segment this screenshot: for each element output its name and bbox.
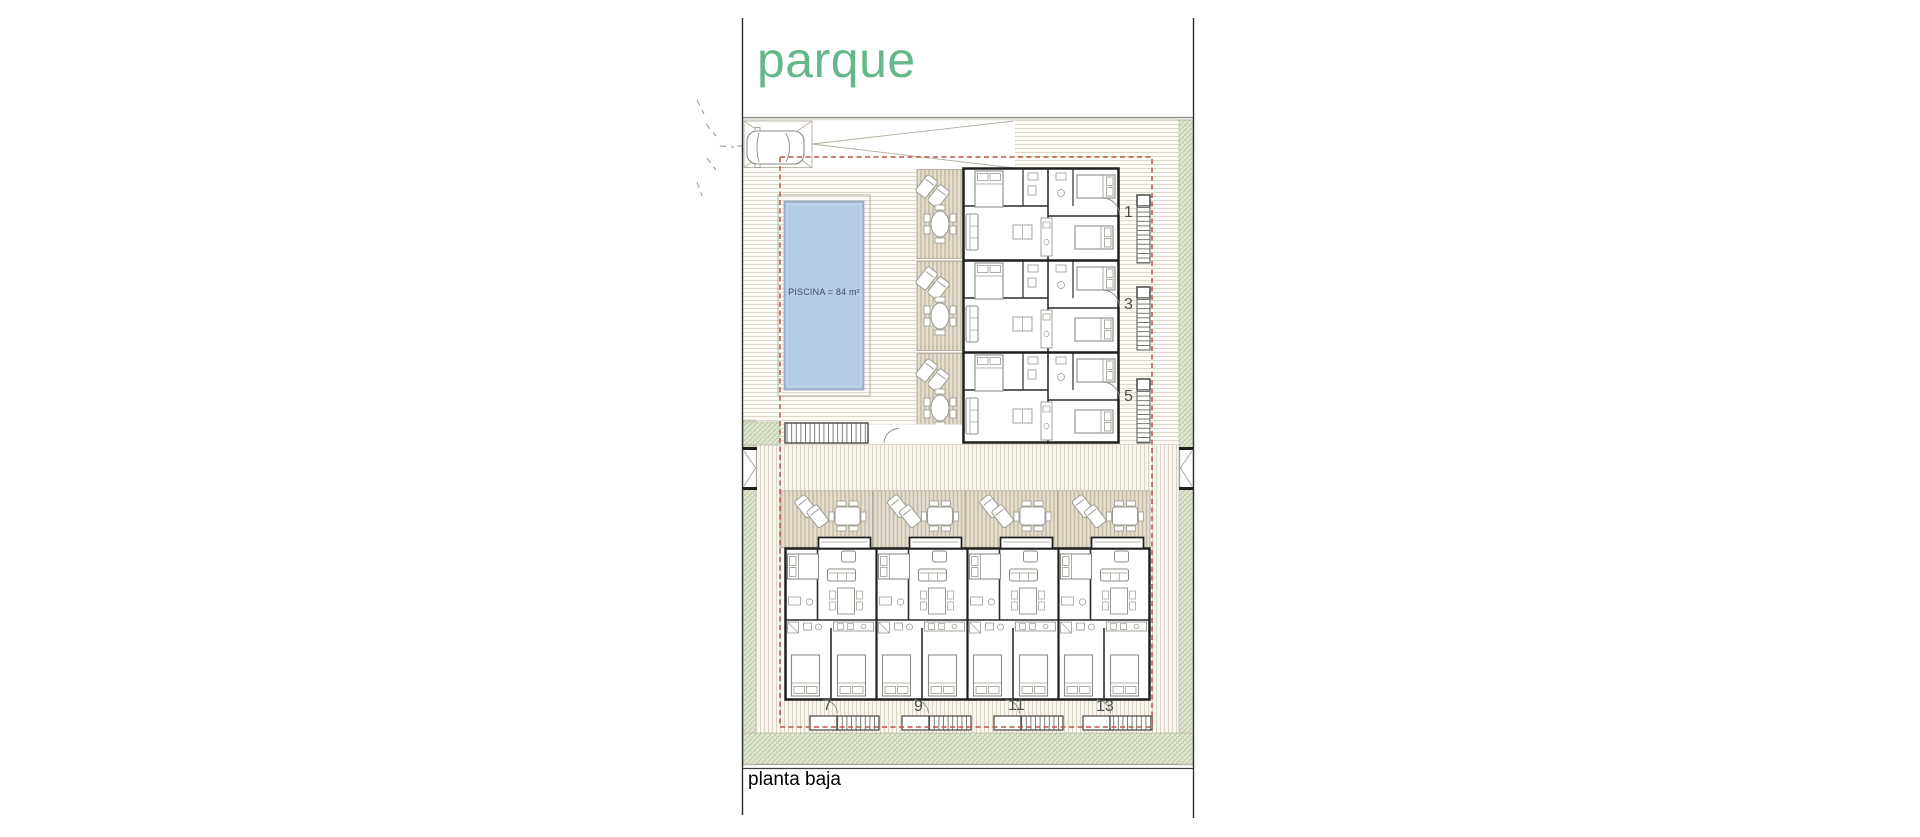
unit-number-7: 7 [823,698,832,714]
upper-terraces [915,170,963,443]
site-plan-drawing [0,0,1920,837]
park-label: parque [757,35,916,85]
unit-number-11: 11 [1008,698,1025,714]
driveway-parking-bay [743,120,1015,170]
unit-number-5: 5 [1124,389,1133,405]
car-icon [747,128,804,168]
unit-number-9: 9 [914,699,923,715]
floor-plan-title: planta baja [748,770,841,789]
communal-stair [785,423,962,444]
upper-entrance-stairs [1137,195,1150,443]
page: { "labels": { "park": "parque", "floor":… [0,0,1920,837]
gate-left [742,448,757,489]
hedge-right [1179,120,1193,765]
unit-number-1: 1 [1124,205,1133,221]
pool-area-label: PISCINA = 84 m² [784,288,864,297]
upper-building [963,168,1120,444]
hedge-bottom [743,733,1193,764]
car-turning-arcs [697,100,746,196]
gate-right [1179,448,1194,489]
hedge-stair-patch [743,422,780,445]
unit-number-13: 13 [1096,699,1114,715]
lower-building [786,538,1150,714]
unit-number-3: 3 [1124,297,1133,313]
